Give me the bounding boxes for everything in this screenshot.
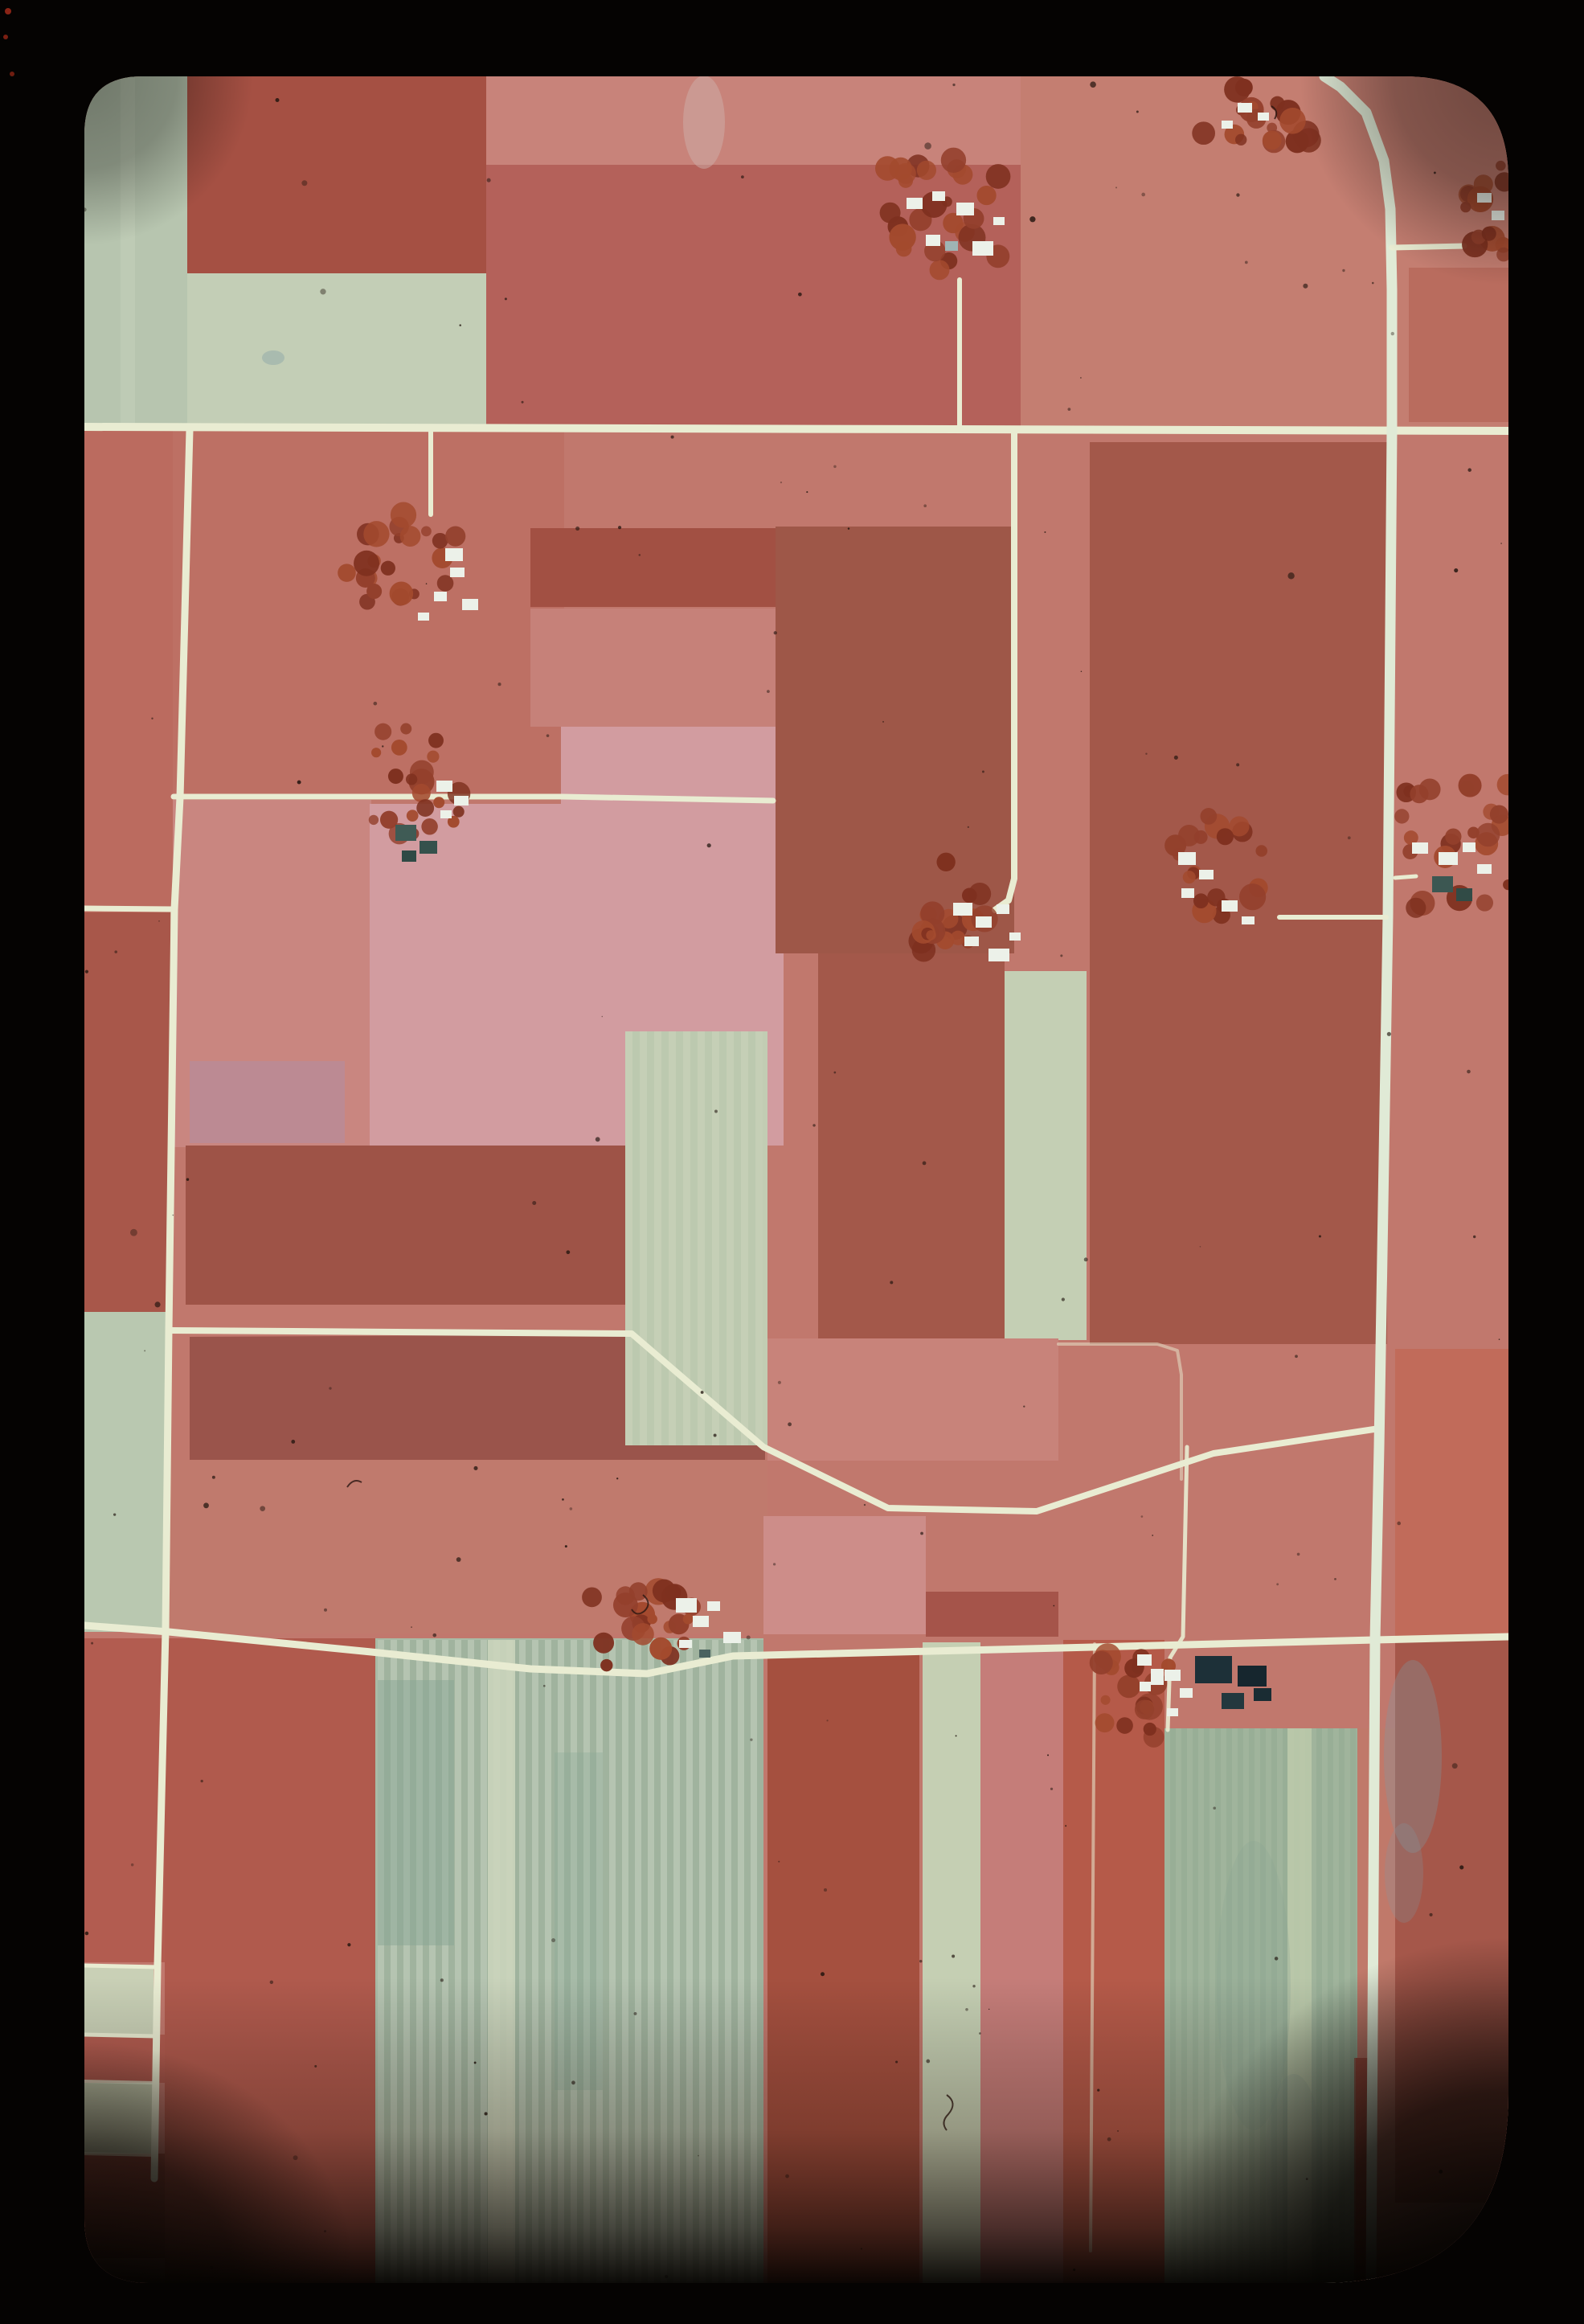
farm-tree: [1459, 774, 1482, 797]
dust-speck: [1500, 543, 1502, 544]
farm-building: [395, 825, 416, 841]
field-dark-band-1: [186, 1146, 625, 1305]
road-bl-line-1: [84, 1965, 158, 1967]
farm-tree: [445, 526, 465, 546]
texture-stripe-pale-strip-rows: [705, 1031, 712, 1445]
dust-speck: [320, 289, 325, 294]
vignette-corner-tl: [84, 76, 253, 245]
dust-speck: [602, 1016, 604, 1018]
film-smudge: [262, 350, 284, 365]
dust-speck: [546, 734, 550, 737]
mount-speck: [3, 35, 8, 39]
dust-speck: [1047, 1754, 1049, 1756]
dust-speck: [1467, 468, 1471, 472]
field-mauve-rect: [190, 1061, 345, 1143]
field-top-right-sub-dark: [1409, 268, 1508, 422]
mount-speck: [10, 72, 14, 76]
texture-stripe-pale-strip-rows: [654, 1031, 661, 1445]
dust-speck: [833, 465, 836, 468]
dust-speck: [596, 1137, 600, 1142]
farm-tree: [375, 723, 391, 740]
farm-building: [454, 796, 469, 805]
texture-stripe-pale-strip-rows: [741, 1031, 748, 1445]
dust-speck: [158, 920, 159, 921]
field-left-salmon-column: [84, 430, 174, 912]
farm-tree: [890, 158, 912, 180]
farm-building: [953, 903, 972, 916]
dust-speck: [920, 1532, 923, 1535]
field-pink-band: [530, 609, 780, 727]
dust-speck: [1062, 1297, 1065, 1301]
farm-tree: [582, 1587, 602, 1607]
farm-building: [1242, 916, 1255, 924]
dust-speck: [1319, 1235, 1321, 1237]
farm-tree: [433, 797, 444, 808]
dust-speck: [1467, 1070, 1471, 1074]
farm-tree: [338, 564, 356, 582]
farm-building: [1195, 1656, 1232, 1683]
farm-tree: [1183, 871, 1196, 883]
farm-tree: [889, 223, 915, 250]
farm-tree: [976, 186, 996, 205]
dust-speck: [923, 1162, 927, 1166]
dust-speck: [203, 1502, 209, 1508]
dust-speck: [919, 1960, 922, 1962]
dust-speck: [1454, 568, 1458, 572]
dust-speck: [1236, 193, 1239, 196]
farm-tree: [647, 1614, 657, 1624]
dust-speck: [968, 826, 969, 828]
dust-speck: [826, 1719, 828, 1721]
farm-tree: [1095, 1713, 1115, 1732]
farm-building: [926, 235, 940, 246]
farm-tree: [1490, 805, 1508, 824]
dust-speck: [85, 1932, 89, 1936]
farm-building: [964, 937, 979, 946]
farm-building: [707, 1601, 720, 1611]
farm-tree: [421, 818, 437, 834]
farm-tree: [400, 723, 411, 735]
farm-tree: [1239, 883, 1266, 910]
dust-speck: [260, 1506, 265, 1511]
farm-tree: [1255, 845, 1267, 857]
field-left-dark-column: [84, 912, 170, 1312]
farm-building: [440, 810, 452, 818]
farm-building: [907, 198, 923, 209]
farm-tree: [926, 930, 935, 940]
dust-speck: [566, 1250, 570, 1254]
dust-speck: [1141, 1515, 1144, 1518]
dust-speck: [1459, 1865, 1463, 1869]
dust-speck: [750, 1739, 752, 1741]
dust-speck: [1060, 954, 1062, 957]
farm-tree: [1410, 785, 1428, 803]
farm-tree: [986, 164, 1011, 189]
farm-building: [450, 568, 465, 577]
dust-speck: [562, 1498, 564, 1501]
dust-speck: [1050, 1788, 1053, 1790]
farm-tree: [388, 769, 403, 784]
dust-speck: [1287, 572, 1294, 579]
texture-stripe-pale-strip-rows: [755, 1031, 763, 1445]
field-dark-block-a: [530, 528, 776, 607]
dust-speck: [1044, 531, 1046, 533]
dust-speck: [1080, 377, 1082, 379]
dust-speck: [864, 1504, 866, 1506]
dust-speck: [773, 1563, 776, 1565]
farm-tree: [380, 811, 398, 829]
photo-area: [83, 76, 1518, 2283]
dust-speck: [113, 1514, 116, 1516]
film-smudge: [1384, 1660, 1442, 1853]
farm-tree: [941, 148, 966, 173]
farm-building: [1439, 852, 1458, 865]
texture-stripe-pale-strip-rows: [625, 1031, 632, 1445]
farm-tree: [437, 575, 454, 592]
farm-tree: [968, 883, 991, 905]
farm-building: [420, 841, 437, 854]
dust-speck: [1141, 193, 1145, 197]
farm-building: [1178, 852, 1196, 865]
dust-speck: [1065, 1825, 1066, 1826]
field-rose-above-road-b: [763, 1516, 926, 1634]
farm-building: [1222, 900, 1238, 912]
farm-tree: [1144, 1723, 1156, 1736]
dust-speck: [1391, 332, 1394, 335]
farm-building: [402, 850, 416, 862]
field-left-pale-green-field: [84, 1312, 170, 1632]
farm-tree: [421, 526, 432, 536]
dust-speck: [1067, 408, 1070, 411]
farm-building: [679, 1640, 692, 1648]
farm-building: [993, 217, 1005, 225]
dust-speck: [505, 297, 507, 300]
dust-speck: [201, 1780, 203, 1782]
dust-speck: [173, 1215, 174, 1215]
farm-building: [436, 781, 452, 792]
farm-tree: [391, 740, 407, 756]
farm-tree: [632, 1623, 654, 1646]
farm-building: [1009, 932, 1021, 941]
farm-tree: [407, 810, 419, 822]
dust-speck: [701, 1391, 704, 1394]
dust-speck: [1152, 1535, 1153, 1536]
dust-speck: [276, 98, 280, 102]
dust-speck: [707, 843, 711, 847]
farm-tree: [1476, 894, 1493, 911]
dust-speck: [144, 1350, 145, 1351]
farm-building: [1222, 1693, 1244, 1709]
texture-stripe-pale-strip-rows: [640, 1031, 647, 1445]
farm-tree: [951, 931, 965, 945]
texture-stripe-pale-strip-rows: [661, 1031, 669, 1445]
farm-building: [418, 613, 429, 621]
dust-speck: [812, 1124, 815, 1126]
farm-tree: [1194, 830, 1208, 844]
farm-building: [1238, 103, 1252, 113]
dust-speck: [1334, 1578, 1336, 1580]
field-pale-strip-mid: [1005, 971, 1087, 1340]
dust-speck: [1452, 1763, 1458, 1769]
farm-tree: [363, 521, 389, 547]
dust-speck: [291, 1440, 295, 1444]
vignette-corner-bl: [84, 2042, 358, 2283]
dust-speck: [824, 1888, 827, 1892]
field-mid-pink-block: [767, 1338, 1058, 1461]
dust-speck: [1297, 1553, 1300, 1556]
farm-tree: [593, 1633, 614, 1654]
dust-speck: [956, 1735, 957, 1736]
farm-tree: [1445, 829, 1461, 845]
texture-stripe-pale-strip-rows: [647, 1031, 654, 1445]
dust-speck: [1387, 1032, 1391, 1036]
farm-tree: [1235, 79, 1253, 96]
dust-speck: [1276, 1583, 1279, 1585]
farm-tree: [1101, 1695, 1111, 1705]
field-dark-big-right-field: [1090, 442, 1387, 1344]
dust-speck: [522, 401, 524, 404]
farm-tree: [453, 806, 465, 818]
texture-stripe-pale-strip-rows: [669, 1031, 676, 1445]
farm-building: [945, 241, 958, 251]
farm-building: [1222, 121, 1233, 129]
dust-speck: [1473, 1236, 1476, 1238]
farm-tree: [917, 161, 936, 180]
dust-speck: [1136, 111, 1139, 113]
farm-tree: [427, 751, 439, 763]
farm-tree: [1200, 808, 1217, 825]
texture-stripe-pale-strip-rows: [734, 1031, 741, 1445]
dust-speck: [487, 178, 491, 182]
farm-building: [676, 1598, 697, 1613]
farm-building: [462, 599, 478, 610]
farm-building: [1167, 1708, 1178, 1716]
field-red-brown-block: [818, 953, 1005, 1338]
dust-speck: [473, 1466, 477, 1470]
farm-building: [1199, 870, 1214, 879]
farm-building: [699, 1650, 710, 1658]
farm-tree: [1116, 1717, 1133, 1734]
road-stub-road-d: [84, 908, 172, 909]
field-bottom-left-red-1: [84, 1638, 166, 1962]
dust-speck: [114, 950, 117, 953]
dust-speck: [382, 745, 383, 747]
texture-stripe-pale-strip-rows: [748, 1031, 755, 1445]
dust-speck: [923, 504, 927, 507]
farm-tree: [381, 561, 395, 576]
dust-speck: [1236, 763, 1239, 766]
farm-tree: [400, 526, 421, 547]
field-dark-block-road-b: [926, 1592, 1058, 1637]
dust-speck: [1213, 1806, 1216, 1810]
farm-tree: [936, 853, 955, 871]
farm-building: [1180, 1688, 1193, 1698]
dust-speck: [798, 293, 802, 297]
farm-tree: [391, 502, 416, 527]
dust-speck: [1084, 1257, 1088, 1261]
farm-building: [1164, 1670, 1181, 1681]
farm-building: [1151, 1669, 1164, 1685]
dust-speck: [1023, 1405, 1025, 1407]
farm-tree: [1090, 1651, 1113, 1674]
film-smudge: [683, 76, 725, 169]
dust-speck: [497, 682, 501, 686]
farm-tree: [683, 1614, 694, 1625]
farm-tree: [369, 815, 379, 825]
dust-speck: [85, 970, 88, 973]
dust-speck: [426, 583, 428, 584]
dust-speck: [780, 482, 782, 483]
farm-tree: [390, 582, 414, 606]
farm-tree: [428, 733, 444, 748]
dust-speck: [456, 1557, 461, 1562]
farm-tree: [416, 799, 434, 817]
texture-stripe-pale-strip-rows: [698, 1031, 705, 1445]
dust-speck: [952, 84, 955, 86]
dust-speck: [618, 526, 621, 529]
dust-speck: [714, 1434, 717, 1437]
farm-building: [988, 949, 1009, 961]
farm-building: [1432, 876, 1453, 892]
farm-tree: [1135, 1699, 1154, 1719]
farm-building: [1254, 1688, 1271, 1701]
dust-speck: [1115, 186, 1117, 188]
dust-speck: [882, 721, 884, 723]
farm-tree: [412, 784, 431, 802]
mount-speck: [5, 8, 11, 14]
farm-tree: [366, 584, 382, 599]
farm-building: [997, 904, 1009, 914]
farm-building: [434, 592, 447, 601]
dust-speck: [747, 1636, 751, 1640]
road-spur-far-right: [1395, 876, 1416, 878]
dust-speck: [155, 1301, 161, 1307]
farm-tree: [653, 1579, 676, 1602]
dust-speck: [1029, 216, 1035, 222]
dust-speck: [767, 690, 770, 693]
dust-speck: [616, 1478, 618, 1479]
farm-tree: [371, 748, 381, 757]
dust-speck: [411, 1626, 412, 1628]
vignette-corner-tr: [1300, 76, 1508, 285]
farm-building: [1463, 842, 1476, 852]
dust-speck: [543, 1685, 546, 1687]
farm-tree: [1117, 1674, 1140, 1698]
dust-speck: [432, 1633, 436, 1637]
farm-tree: [1406, 898, 1426, 918]
dust-speck: [848, 527, 849, 529]
farm-tree: [600, 1659, 612, 1671]
road-section-road-a: [84, 427, 1508, 431]
aerial-photo-content: [0, 0, 1584, 2324]
dust-speck: [833, 1072, 836, 1074]
dust-speck: [532, 1201, 536, 1205]
dust-speck: [324, 1609, 327, 1612]
dust-speck: [1174, 756, 1178, 760]
dust-speck: [671, 436, 674, 439]
dust-speck: [1145, 753, 1147, 755]
farm-building: [445, 548, 463, 561]
dust-speck: [459, 324, 461, 326]
dust-speck: [151, 718, 153, 719]
farm-tree: [1476, 823, 1500, 847]
vignette-corner-br: [1163, 1937, 1508, 2283]
dust-speck: [575, 527, 579, 531]
farm-building: [1456, 888, 1472, 901]
dust-speck: [806, 491, 808, 493]
dust-speck: [1081, 670, 1083, 672]
farm-tree: [1235, 134, 1246, 146]
farm-building: [956, 203, 974, 215]
dust-speck: [212, 1476, 215, 1479]
farm-tree: [354, 551, 379, 576]
dust-speck: [924, 142, 931, 150]
texture-stripe-pale-strip-rows: [719, 1031, 727, 1445]
dust-speck: [778, 1861, 780, 1863]
farm-tree: [649, 1637, 672, 1660]
dust-speck: [1090, 81, 1096, 88]
dust-speck: [821, 1972, 825, 1976]
farm-tree: [1217, 828, 1234, 845]
dust-speck: [714, 1110, 718, 1113]
dust-speck: [741, 175, 744, 178]
dust-speck: [788, 1422, 792, 1426]
dust-speck: [774, 631, 777, 634]
dust-speck: [297, 781, 301, 785]
dust-speck: [91, 1642, 93, 1645]
farm-building: [1238, 1666, 1267, 1687]
farm-building: [1140, 1682, 1151, 1691]
farm-building: [976, 916, 992, 928]
dust-speck: [1295, 1355, 1298, 1358]
dust-speck: [570, 1507, 573, 1510]
dust-speck: [639, 554, 641, 556]
dust-speck: [1245, 261, 1248, 264]
dust-speck: [1499, 1338, 1500, 1340]
texture-teal-patch-1: [378, 1680, 454, 1945]
dust-speck: [130, 1229, 137, 1236]
farm-tree: [1193, 893, 1209, 908]
dust-speck: [373, 702, 377, 706]
field-east-highway-lower: [1395, 1349, 1508, 1639]
field-center-salmon-block: [173, 430, 564, 800]
farm-building: [1258, 113, 1269, 121]
dust-speck: [565, 1545, 567, 1547]
farm-building: [972, 241, 993, 256]
farm-tree: [1263, 131, 1282, 150]
dust-speck: [952, 1955, 955, 1958]
dust-speck: [329, 1387, 331, 1389]
dust-speck: [890, 1281, 893, 1284]
dust-speck: [131, 1863, 134, 1867]
farm-building: [1137, 1654, 1152, 1666]
farm-tree: [1394, 809, 1409, 823]
dust-speck: [778, 1381, 781, 1384]
dust-speck: [1200, 1246, 1201, 1248]
farm-building: [1181, 888, 1194, 898]
slide-mount: False-color infrared aerial photograph o…: [0, 0, 1584, 2324]
dust-speck: [347, 1943, 350, 1946]
dust-speck: [551, 1938, 555, 1942]
field-top-pale-green-field: [187, 273, 486, 426]
dust-speck: [1348, 836, 1351, 839]
farm-building: [723, 1632, 741, 1643]
farm-tree: [1192, 121, 1215, 145]
texture-stripe-pale-strip-rows: [632, 1031, 640, 1445]
farm-tree: [406, 773, 417, 785]
dust-speck: [1053, 1605, 1054, 1607]
farm-building: [932, 191, 945, 201]
